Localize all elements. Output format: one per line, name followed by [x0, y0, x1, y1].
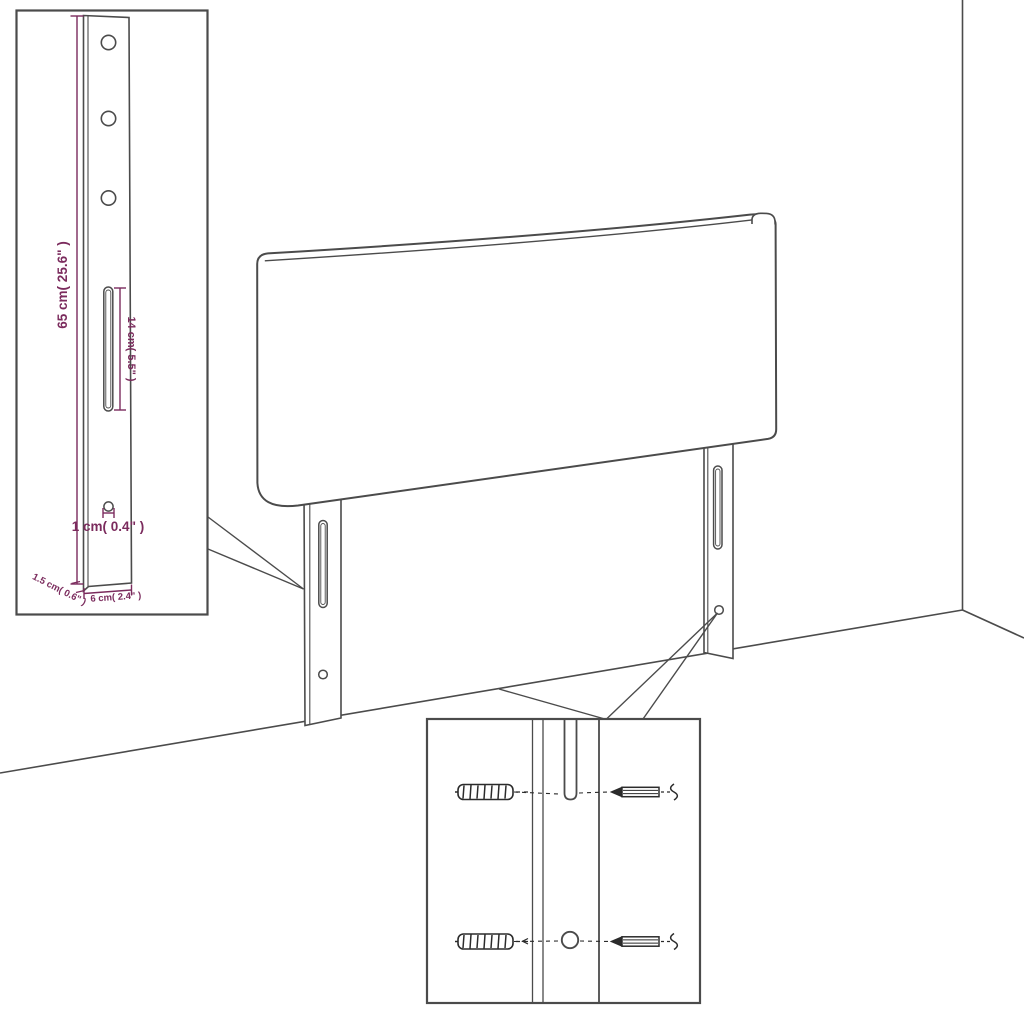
hardware-detail-box [427, 719, 700, 1003]
right-mounting-leg [704, 433, 733, 659]
detail-leg-hole-2 [101, 111, 115, 125]
leg-detail-leader-lower [208, 549, 304, 589]
diagram-canvas: 65 cm( 25.6" ) 14 cm( 5.5" ) 1 cm( 0.4" … [0, 0, 1024, 1024]
dim-14cm-label: 14 cm( 5.5" ) [125, 316, 137, 381]
hardware-leader-left [607, 613, 718, 719]
headboard-diagram: 65 cm( 25.6" ) 14 cm( 5.5" ) 1 cm( 0.4" … [0, 0, 1024, 1024]
right-leg-slot [714, 466, 722, 549]
callout-leader-lines [208, 517, 718, 720]
left-mounting-leg [304, 482, 341, 726]
headboard-corner-tab [752, 213, 775, 224]
left-leg-hole [319, 670, 328, 679]
leg-detail-leader-upper [208, 517, 304, 589]
left-leg-slot [319, 521, 327, 608]
right-leg-hole [715, 606, 724, 615]
magnified-hole [562, 932, 578, 948]
leg-detail-box: 65 cm( 25.6" ) 14 cm( 5.5" ) 1 cm( 0.4" … [17, 11, 208, 615]
detail-leg-small-hole [104, 502, 113, 511]
detail-leg-hole-1 [101, 35, 115, 49]
floor-branch-line [499, 689, 607, 720]
dim-65cm-label: 65 cm( 25.6" ) [55, 241, 70, 328]
hardware-leader-right [643, 613, 718, 719]
dim-1cm-label: 1 cm( 0.4" ) [72, 519, 144, 534]
floor-line-right [963, 610, 1024, 638]
headboard-panel [257, 213, 776, 506]
detail-leg [84, 16, 132, 592]
detail-leg-hole-3 [101, 191, 115, 205]
detail-leg-slot [104, 287, 113, 411]
